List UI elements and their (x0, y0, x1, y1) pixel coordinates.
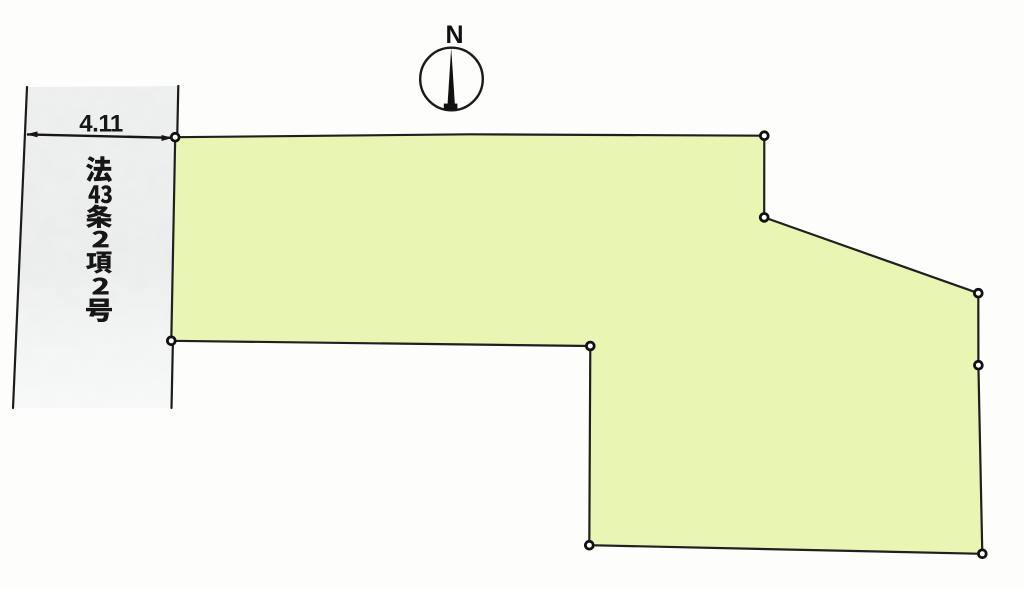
svg-text:N: N (445, 21, 463, 49)
svg-text:4.11: 4.11 (79, 111, 123, 138)
